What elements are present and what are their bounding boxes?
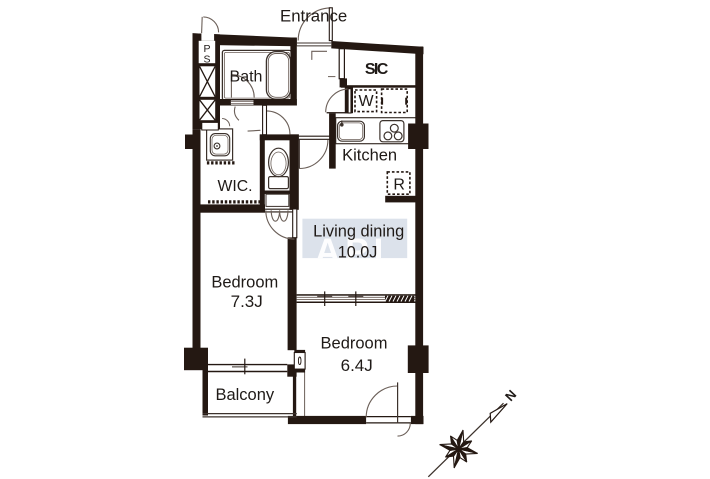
svg-text:Bedroom: Bedroom [321, 334, 388, 352]
svg-text:Entrance: Entrance [280, 7, 347, 26]
svg-text:R: R [393, 177, 405, 194]
svg-text:S: S [203, 54, 210, 66]
svg-text:W: W [358, 93, 374, 110]
svg-text:Kitchen: Kitchen [342, 147, 397, 165]
svg-text:WIC.: WIC. [217, 178, 252, 195]
svg-text:SIC: SIC [365, 61, 389, 78]
svg-text:Balcony: Balcony [215, 386, 274, 404]
svg-text:6.4J: 6.4J [341, 356, 373, 375]
svg-text:Living dining: Living dining [313, 223, 404, 241]
svg-text:Bath: Bath [230, 69, 263, 86]
svg-text:Bedroom: Bedroom [211, 274, 278, 292]
svg-text:10.0J: 10.0J [338, 244, 378, 262]
svg-text:7.3J: 7.3J [231, 292, 263, 311]
